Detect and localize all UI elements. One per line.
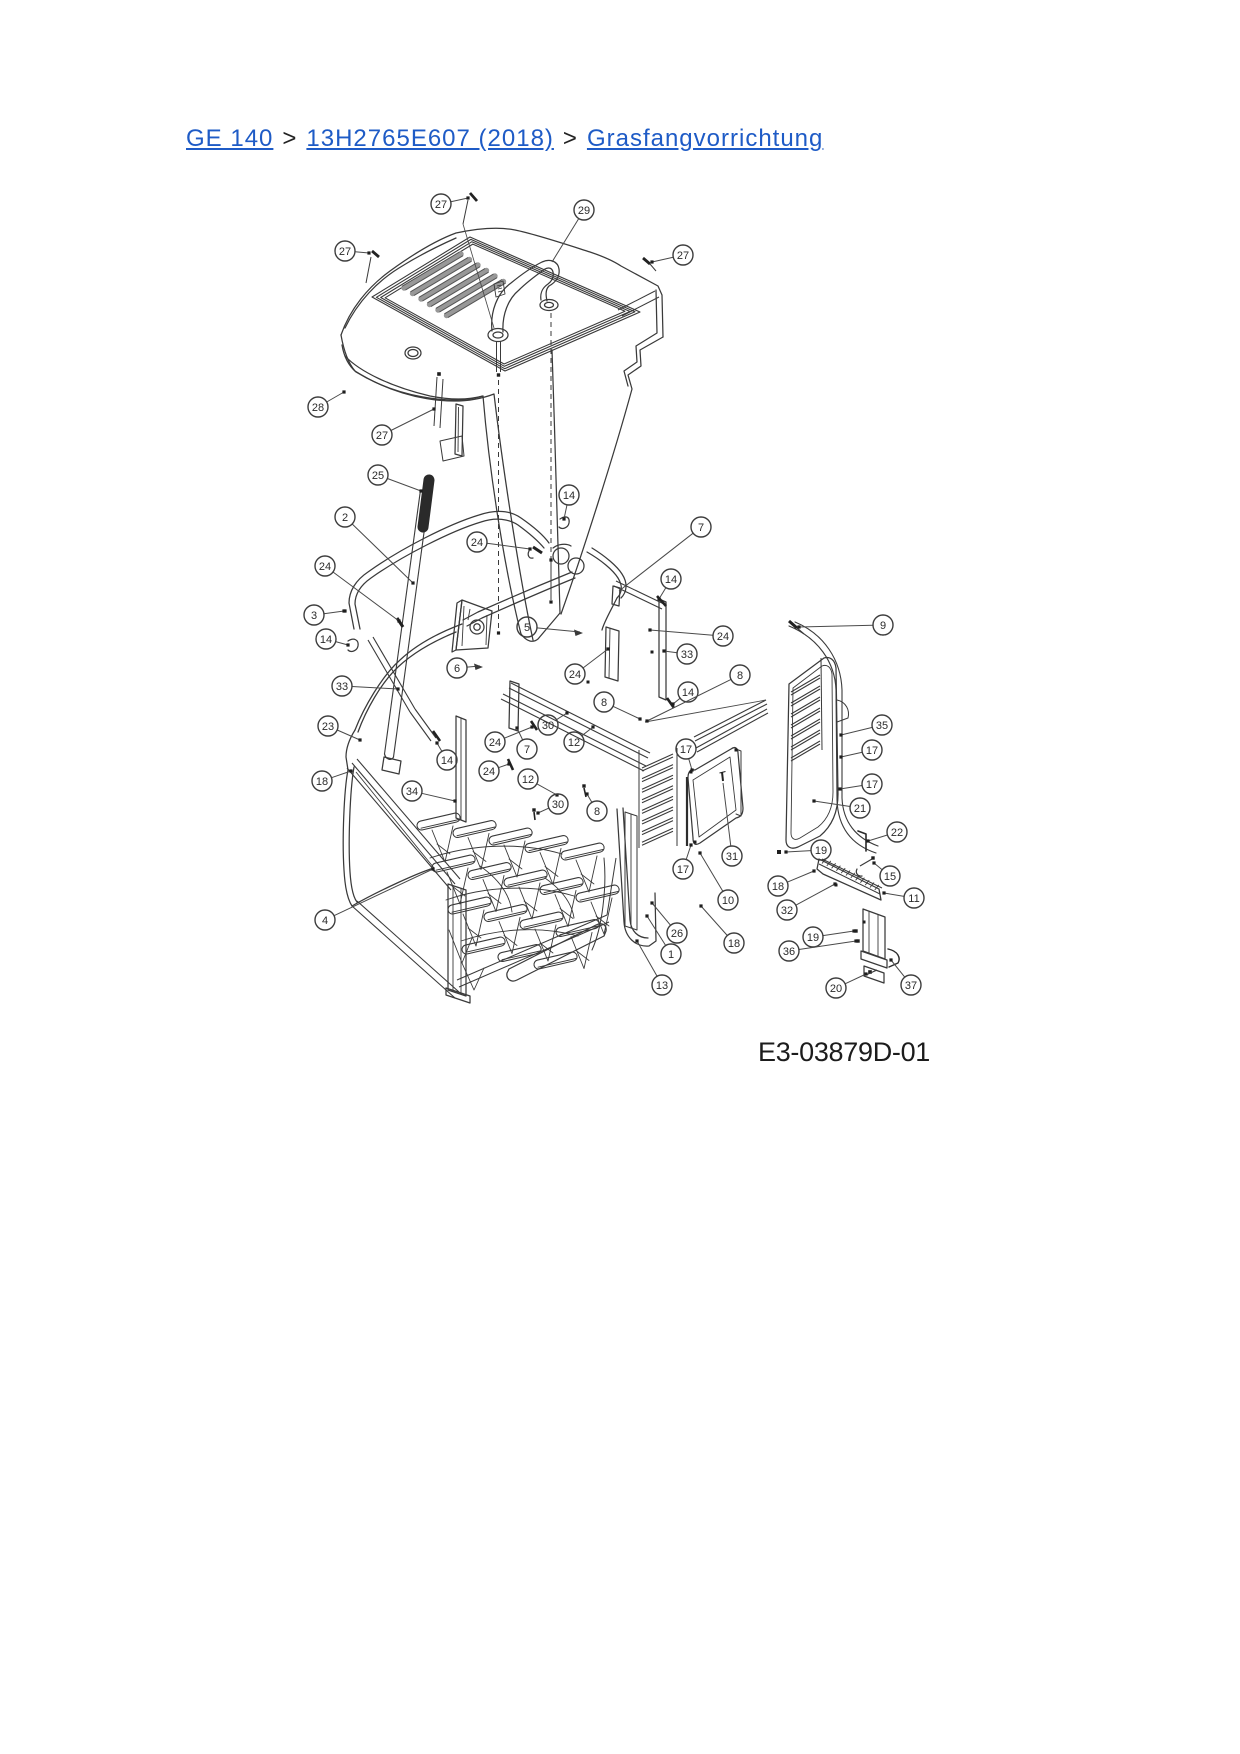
svg-text:8: 8 <box>594 806 600 818</box>
svg-text:17: 17 <box>866 779 878 791</box>
svg-text:14: 14 <box>320 634 332 646</box>
svg-text:9: 9 <box>880 620 886 632</box>
svg-text:22: 22 <box>891 827 903 839</box>
svg-text:14: 14 <box>563 490 575 502</box>
svg-text:33: 33 <box>336 681 348 693</box>
svg-text:13: 13 <box>656 980 668 992</box>
svg-text:18: 18 <box>728 938 740 950</box>
svg-text:8: 8 <box>601 697 607 709</box>
svg-text:7: 7 <box>698 522 704 534</box>
svg-text:23: 23 <box>322 721 334 733</box>
svg-text:24: 24 <box>489 737 501 749</box>
svg-text:25: 25 <box>372 470 384 482</box>
svg-text:17: 17 <box>680 744 692 756</box>
svg-text:10: 10 <box>722 895 734 907</box>
svg-text:5: 5 <box>524 622 530 634</box>
svg-text:30: 30 <box>542 720 554 732</box>
svg-text:18: 18 <box>316 776 328 788</box>
svg-text:14: 14 <box>441 755 453 767</box>
svg-text:15: 15 <box>884 871 896 883</box>
svg-text:24: 24 <box>483 766 495 778</box>
svg-text:29: 29 <box>578 205 590 217</box>
svg-text:31: 31 <box>726 851 738 863</box>
svg-text:3: 3 <box>311 610 317 622</box>
svg-text:12: 12 <box>568 737 580 749</box>
svg-text:4: 4 <box>322 915 328 927</box>
svg-text:24: 24 <box>471 537 483 549</box>
svg-text:30: 30 <box>552 799 564 811</box>
svg-text:27: 27 <box>677 250 689 262</box>
svg-text:32: 32 <box>781 905 793 917</box>
svg-text:27: 27 <box>376 430 388 442</box>
svg-text:21: 21 <box>854 803 866 815</box>
svg-text:28: 28 <box>312 402 324 414</box>
svg-text:14: 14 <box>665 574 677 586</box>
svg-text:27: 27 <box>339 246 351 258</box>
svg-text:24: 24 <box>717 631 729 643</box>
svg-text:24: 24 <box>569 669 581 681</box>
svg-text:33: 33 <box>681 649 693 661</box>
svg-text:18: 18 <box>772 881 784 893</box>
svg-text:8: 8 <box>737 670 743 682</box>
svg-text:7: 7 <box>524 744 530 756</box>
svg-text:11: 11 <box>908 893 919 905</box>
svg-text:17: 17 <box>866 745 878 757</box>
svg-text:6: 6 <box>454 663 460 675</box>
svg-text:35: 35 <box>876 720 888 732</box>
svg-text:14: 14 <box>682 687 694 699</box>
svg-text:26: 26 <box>671 928 683 940</box>
svg-text:19: 19 <box>807 932 819 944</box>
svg-text:36: 36 <box>783 946 795 958</box>
svg-text:2: 2 <box>342 512 348 524</box>
svg-text:17: 17 <box>677 864 689 876</box>
svg-text:1: 1 <box>668 949 674 961</box>
svg-text:19: 19 <box>815 845 827 857</box>
svg-text:34: 34 <box>406 786 418 798</box>
svg-text:12: 12 <box>522 774 534 786</box>
svg-text:37: 37 <box>905 980 917 992</box>
svg-text:20: 20 <box>830 983 842 995</box>
svg-text:27: 27 <box>435 199 447 211</box>
svg-text:24: 24 <box>319 561 331 573</box>
